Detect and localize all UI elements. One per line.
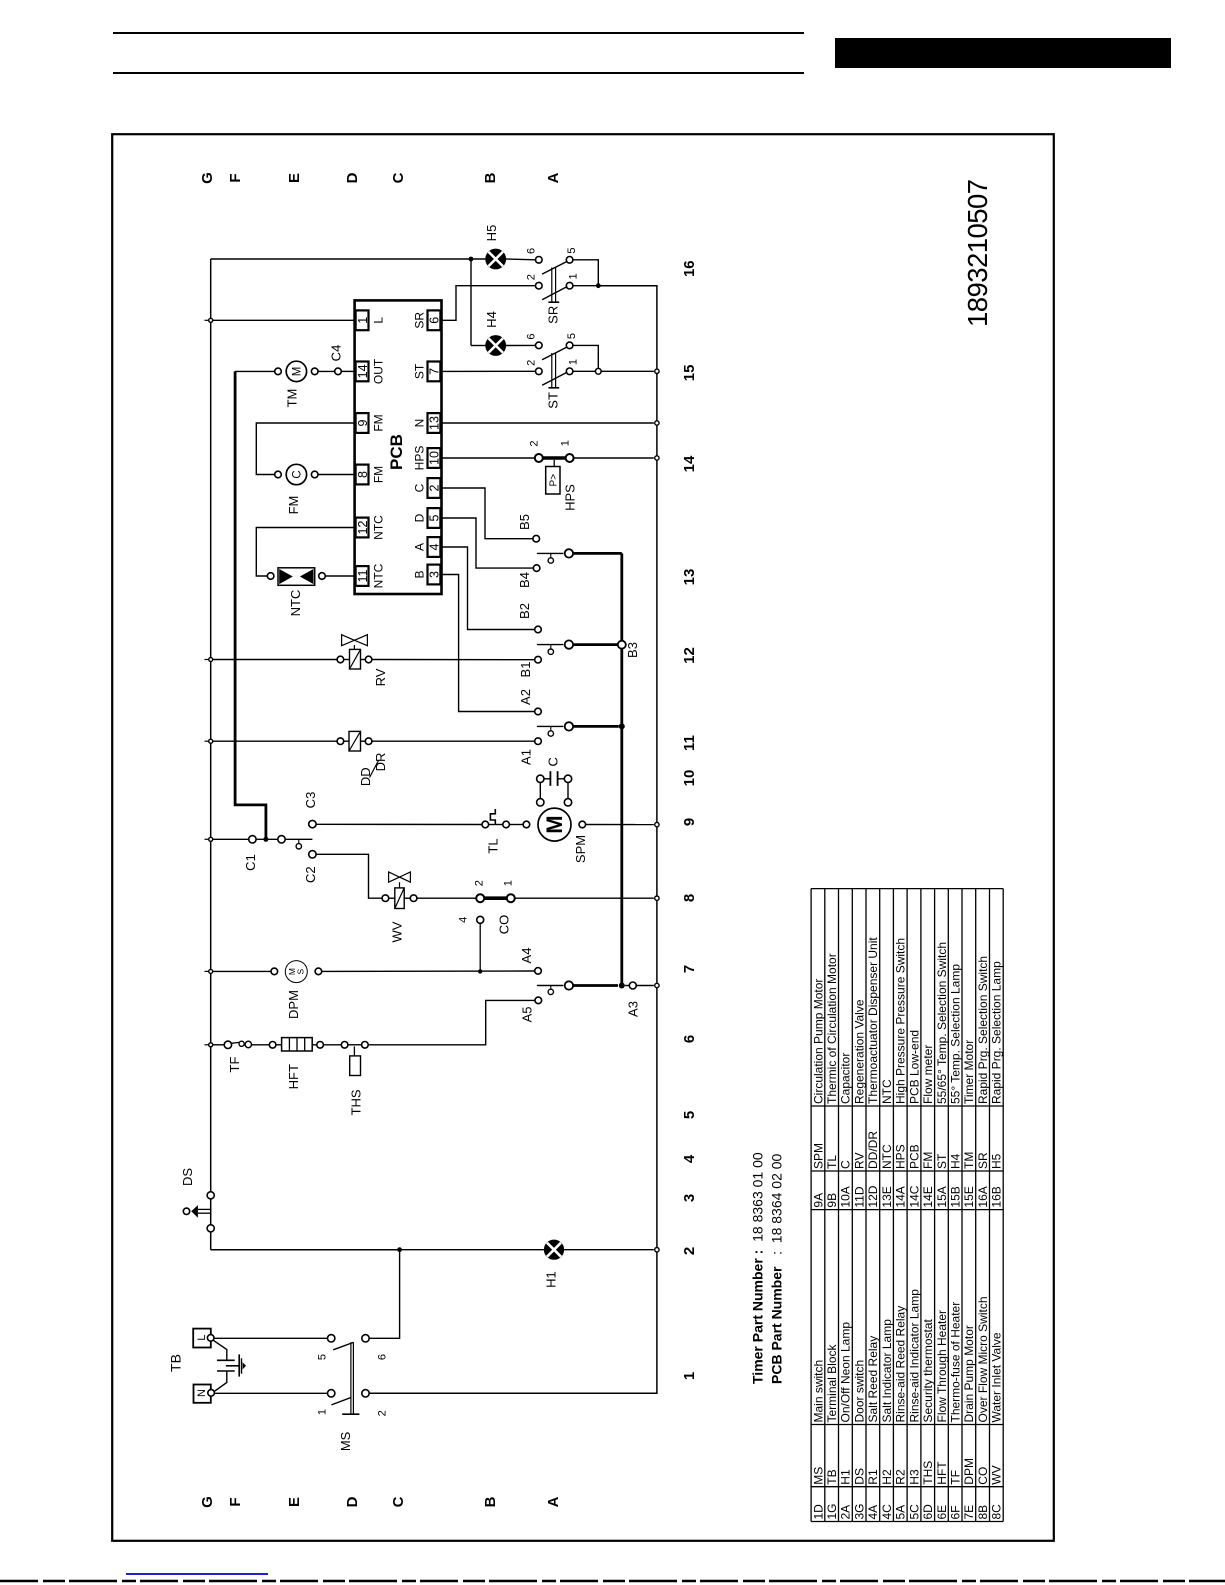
svg-text:Capacitor: Capacitor (839, 1053, 853, 1104)
svg-text:8: 8 (681, 894, 698, 902)
svg-text:Salt Indicator Lamp: Salt Indicator Lamp (880, 1319, 894, 1423)
svg-text:2: 2 (526, 360, 538, 366)
svg-text:4: 4 (428, 543, 442, 550)
svg-text:B4: B4 (517, 572, 532, 588)
svg-text:3: 3 (428, 571, 442, 578)
svg-text:Thermo-fuse of Heater: Thermo-fuse of Heater (949, 1302, 963, 1423)
svg-text:Flow Through Heater: Flow Through Heater (935, 1310, 949, 1423)
svg-text:14E: 14E (921, 1186, 935, 1207)
svg-text:5: 5 (566, 333, 578, 339)
svg-text:Salt Reed Relay: Salt Reed Relay (866, 1336, 880, 1423)
svg-text:MS: MS (811, 1467, 825, 1485)
svg-text:B1: B1 (518, 662, 533, 678)
svg-text:H5: H5 (990, 1153, 1004, 1169)
svg-text:DR: DR (373, 753, 388, 772)
svg-text:High Pressure Pressure Switch: High Pressure Pressure Switch (894, 938, 908, 1104)
svg-text:D: D (413, 513, 427, 522)
svg-text:NTC: NTC (880, 1079, 894, 1104)
svg-text:H1: H1 (839, 1469, 853, 1485)
svg-text:10A: 10A (839, 1186, 853, 1207)
svg-text:14: 14 (681, 455, 698, 472)
svg-text:C3: C3 (303, 792, 318, 809)
svg-text:1: 1 (559, 440, 571, 446)
svg-text:2: 2 (473, 880, 485, 886)
svg-text:5: 5 (681, 1111, 698, 1119)
svg-text:TF: TF (227, 1057, 242, 1073)
svg-text:Rapid Prg. Selection Lamp: Rapid Prg. Selection Lamp (990, 961, 1004, 1104)
svg-text:3: 3 (681, 1194, 698, 1202)
svg-text:A1: A1 (519, 749, 534, 765)
svg-text:Drain Pump Motor: Drain Pump Motor (962, 1325, 976, 1422)
svg-text:DS: DS (180, 1168, 195, 1186)
svg-text:C: C (413, 483, 427, 492)
svg-text:WV: WV (390, 921, 405, 942)
svg-text:8C: 8C (990, 1504, 1004, 1520)
svg-text:HFT: HFT (286, 1064, 301, 1089)
svg-text:OUT: OUT (372, 358, 386, 384)
svg-text:B: B (413, 570, 427, 578)
svg-text:MS: MS (338, 1431, 353, 1451)
svg-text:FM: FM (372, 466, 386, 483)
svg-text:G: G (199, 1496, 216, 1508)
svg-text:5A: 5A (894, 1505, 908, 1520)
svg-text:TL: TL (486, 838, 501, 853)
svg-text:RV: RV (373, 668, 388, 686)
svg-text:5C: 5C (907, 1504, 921, 1520)
svg-text:Water Inlet Valve: Water Inlet Valve (990, 1332, 1004, 1422)
svg-text:9: 9 (681, 818, 698, 826)
svg-text:TM: TM (962, 1152, 976, 1169)
svg-text:6D: 6D (921, 1504, 935, 1520)
svg-text:16A: 16A (976, 1186, 990, 1207)
svg-text:TL: TL (825, 1155, 839, 1169)
svg-text:SPM: SPM (811, 1143, 825, 1169)
svg-text:14A: 14A (894, 1186, 908, 1207)
svg-text:1: 1 (568, 273, 580, 279)
svg-text:THS: THS (348, 1089, 363, 1115)
svg-text:H2: H2 (880, 1469, 894, 1485)
svg-text:6: 6 (376, 1354, 388, 1360)
svg-text:DD: DD (358, 767, 373, 786)
svg-text:PCB: PCB (387, 434, 406, 470)
svg-text:CO: CO (976, 1467, 990, 1485)
svg-text:TM: TM (285, 389, 300, 408)
svg-text:15A: 15A (935, 1186, 949, 1207)
svg-text:S: S (296, 968, 306, 974)
svg-text:3G: 3G (853, 1503, 867, 1519)
svg-text:7: 7 (428, 368, 442, 375)
svg-text:H5: H5 (484, 225, 499, 242)
svg-text:2: 2 (681, 1247, 698, 1255)
svg-text:Security thermostat: Security thermostat (921, 1318, 935, 1422)
svg-text:4: 4 (457, 917, 469, 923)
svg-text:C: C (390, 1496, 407, 1507)
svg-text:11: 11 (356, 569, 370, 582)
svg-text:2: 2 (376, 1410, 388, 1416)
svg-text:13E: 13E (880, 1186, 894, 1207)
svg-text:A4: A4 (519, 948, 534, 964)
svg-text:L: L (372, 317, 386, 324)
svg-text:7: 7 (681, 965, 698, 973)
svg-text:DPM: DPM (286, 990, 301, 1019)
svg-text:SR: SR (545, 306, 560, 324)
svg-text:13: 13 (428, 416, 442, 430)
svg-text:C: C (839, 1160, 853, 1169)
svg-text:N: N (413, 419, 427, 428)
svg-text:NTC: NTC (372, 563, 386, 588)
svg-text:Circulation Pump Motor: Circulation Pump Motor (811, 979, 825, 1104)
svg-text:RV: RV (853, 1153, 867, 1169)
svg-text:DS: DS (853, 1468, 867, 1485)
svg-text:12: 12 (681, 647, 698, 664)
svg-text:E: E (286, 1497, 303, 1507)
svg-text:D: D (344, 172, 361, 183)
svg-text:5: 5 (316, 1354, 328, 1360)
svg-text:9: 9 (356, 419, 370, 426)
svg-text:C2: C2 (303, 866, 318, 883)
svg-text:G: G (199, 172, 216, 184)
svg-text:14: 14 (356, 364, 370, 378)
svg-text:PCB: PCB (907, 1144, 921, 1169)
svg-text:15: 15 (681, 365, 698, 382)
svg-text:11: 11 (681, 735, 698, 751)
svg-text:1: 1 (316, 1409, 328, 1415)
svg-text:4A: 4A (866, 1505, 880, 1520)
svg-text:10: 10 (428, 451, 442, 465)
svg-text:6: 6 (526, 333, 538, 339)
svg-text:R1: R1 (866, 1469, 880, 1485)
svg-text:5: 5 (428, 514, 442, 521)
svg-text:PCB Low-end: PCB Low-end (907, 1030, 921, 1104)
svg-text:Over Flow Micro Switch: Over Flow Micro Switch (976, 1296, 990, 1422)
svg-text:4: 4 (681, 1154, 698, 1163)
svg-text:C: C (291, 470, 303, 478)
svg-text:8: 8 (356, 471, 370, 478)
svg-text:E: E (286, 173, 303, 183)
svg-text:FM: FM (372, 414, 386, 431)
svg-text:TB: TB (825, 1469, 839, 1484)
svg-text:A: A (413, 543, 427, 551)
svg-text:H4: H4 (484, 311, 499, 328)
svg-text:Timer Part Number : 18 8363 0: Timer Part Number : 18 8363 01 00 (750, 1152, 766, 1384)
svg-text:16: 16 (681, 260, 698, 277)
svg-text:TB: TB (168, 1354, 184, 1372)
svg-text:Thermoactuator Dispenser Unit: Thermoactuator Dispenser Unit (866, 937, 880, 1104)
svg-text:16B: 16B (990, 1186, 1004, 1207)
svg-text:A: A (545, 172, 562, 183)
svg-text:10: 10 (681, 770, 698, 787)
svg-text:Flow meter: Flow meter (921, 1045, 935, 1104)
svg-text:1: 1 (568, 359, 580, 365)
svg-text:HPS: HPS (413, 446, 427, 471)
svg-text:55/65° Temp. Selection Switch: 55/65° Temp. Selection Switch (935, 942, 949, 1104)
svg-text:Thermic of Circulation Motor: Thermic of Circulation Motor (825, 953, 839, 1104)
svg-text:Main switch: Main switch (811, 1360, 825, 1423)
svg-text:15B: 15B (949, 1186, 963, 1207)
svg-text:C4: C4 (329, 345, 344, 362)
svg-text:B2: B2 (517, 603, 532, 619)
svg-text:H1: H1 (543, 1271, 558, 1288)
svg-text:B: B (482, 172, 499, 183)
svg-text:1D: 1D (811, 1504, 825, 1520)
svg-text:On/Off Neon Lamp: On/Off Neon Lamp (839, 1322, 853, 1423)
svg-text:H4: H4 (949, 1153, 963, 1169)
svg-text:FM: FM (921, 1152, 935, 1169)
svg-text:Rinse-aid Indicator Lamp: Rinse-aid Indicator Lamp (907, 1289, 921, 1423)
svg-text:Terminal Block: Terminal Block (825, 1343, 839, 1422)
svg-text:9A: 9A (811, 1193, 825, 1208)
svg-text:DD/DR: DD/DR (866, 1131, 880, 1169)
svg-text:1: 1 (356, 317, 370, 324)
svg-text:Regeneration Valve: Regeneration Valve (853, 999, 867, 1104)
svg-text:6: 6 (428, 317, 442, 324)
svg-text:Door switch: Door switch (853, 1360, 867, 1423)
svg-text:SR: SR (413, 312, 427, 329)
svg-text:A: A (545, 1496, 562, 1507)
svg-text:ST: ST (413, 363, 427, 379)
svg-text:ST: ST (545, 392, 560, 409)
svg-text:CO: CO (497, 915, 512, 935)
svg-text:HPS: HPS (563, 484, 578, 511)
svg-text:6: 6 (681, 1035, 698, 1043)
svg-text:4C: 4C (880, 1504, 894, 1520)
svg-text:9B: 9B (825, 1193, 839, 1208)
svg-text:Timer Motor: Timer Motor (962, 1040, 976, 1104)
svg-text:5: 5 (566, 247, 578, 253)
svg-text:12: 12 (356, 521, 370, 535)
svg-text:TF: TF (949, 1470, 963, 1485)
svg-text:7E: 7E (962, 1505, 976, 1520)
svg-text:WV: WV (990, 1465, 1004, 1484)
svg-text:THS: THS (921, 1461, 935, 1485)
svg-text:2A: 2A (839, 1505, 853, 1520)
svg-text:55° Temp. Selection Lamp: 55° Temp. Selection Lamp (949, 964, 963, 1104)
svg-text:FM: FM (286, 496, 301, 515)
svg-text:L: L (196, 1334, 208, 1340)
svg-text:B5: B5 (517, 514, 532, 530)
svg-text:D: D (344, 1496, 361, 1507)
svg-text:A2: A2 (518, 689, 533, 705)
svg-text:8B: 8B (976, 1505, 990, 1520)
svg-text:1: 1 (681, 1372, 698, 1380)
svg-text:NTC: NTC (372, 515, 386, 540)
svg-text:M: M (291, 367, 303, 377)
svg-text:HFT: HFT (935, 1461, 949, 1485)
svg-text:12D: 12D (866, 1185, 880, 1207)
svg-text:C: C (545, 757, 560, 766)
svg-text:ST: ST (935, 1153, 949, 1169)
svg-text:2: 2 (526, 274, 538, 280)
svg-text:6: 6 (526, 248, 538, 254)
svg-text:2: 2 (529, 440, 541, 446)
svg-text:14C: 14C (907, 1185, 921, 1207)
svg-text:N: N (196, 1389, 208, 1397)
svg-text:A3: A3 (626, 1001, 641, 1017)
svg-text:PCB Part Number : 18 8364 0: PCB Part Number : 18 8364 02 00 (769, 1153, 785, 1384)
svg-text:6F: 6F (949, 1505, 963, 1519)
svg-text:SR: SR (976, 1152, 990, 1169)
svg-text:11D: 11D (853, 1186, 867, 1207)
svg-text:DPM: DPM (962, 1458, 976, 1485)
svg-text:Rapid Prg. Selection Switch: Rapid Prg. Selection Switch (976, 956, 990, 1104)
svg-text:H3: H3 (907, 1469, 921, 1485)
svg-text:Rinse-aid Reed Relay: Rinse-aid Reed Relay (894, 1306, 908, 1423)
svg-text:B3: B3 (625, 642, 640, 658)
svg-text:SPM: SPM (573, 835, 588, 863)
svg-text:6E: 6E (935, 1505, 949, 1520)
svg-text:2: 2 (428, 484, 442, 491)
svg-text:C1: C1 (243, 854, 258, 871)
svg-text:HPS: HPS (894, 1144, 908, 1169)
svg-text:F: F (227, 173, 244, 182)
svg-text:B: B (482, 1496, 499, 1507)
svg-text:C: C (390, 172, 407, 183)
svg-text:1G: 1G (825, 1503, 839, 1519)
svg-text:1: 1 (502, 880, 514, 886)
svg-text:1893210507: 1893210507 (962, 179, 993, 327)
svg-text:NTC: NTC (880, 1144, 894, 1169)
svg-text:13: 13 (681, 569, 698, 586)
svg-text:P>: P> (548, 474, 559, 487)
svg-text:M: M (542, 815, 567, 833)
svg-text:A5: A5 (519, 1006, 534, 1022)
svg-text:NTC: NTC (288, 590, 303, 617)
svg-text:15E: 15E (962, 1186, 976, 1207)
svg-text:F: F (227, 1497, 244, 1506)
svg-text:R2: R2 (894, 1469, 908, 1485)
